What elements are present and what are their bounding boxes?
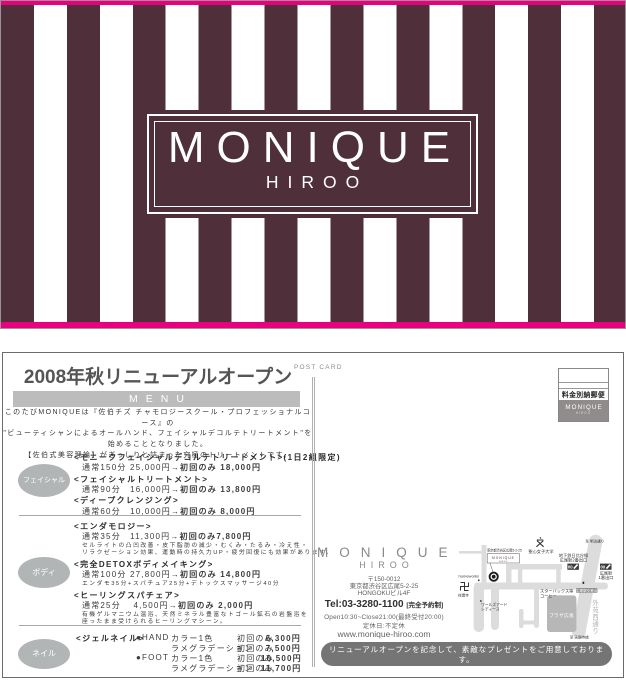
svg-text:至 天現寺橋: 至 天現寺橋 bbox=[570, 635, 589, 640]
svg-text:り: り bbox=[592, 627, 598, 635]
svg-text:00: 00 bbox=[600, 565, 605, 570]
svg-text:HIROO: HIROO bbox=[499, 561, 508, 563]
svg-text:レディース: レディース bbox=[481, 607, 500, 612]
svg-text:ワールズアード: ワールズアード bbox=[481, 602, 508, 607]
svg-text:祥雲寺: 祥雲寺 bbox=[458, 593, 469, 598]
svg-text:東京都渋谷区広尾5-2-25: 東京都渋谷区広尾5-2-25 bbox=[487, 548, 522, 553]
svg-text:1番出口: 1番出口 bbox=[599, 574, 614, 581]
svg-text:homeworks: homeworks bbox=[459, 574, 479, 579]
svg-text:広尾駅2番出口: 広尾駅2番出口 bbox=[560, 557, 587, 564]
svg-text:西: 西 bbox=[592, 613, 598, 621]
svg-text:通: 通 bbox=[592, 619, 599, 628]
svg-text:外: 外 bbox=[592, 598, 599, 607]
svg-text:聖心女子大学: 聖心女子大学 bbox=[528, 548, 553, 555]
svg-text:コーヒー: コーヒー bbox=[540, 593, 557, 598]
svg-text:至 明治通り: 至 明治通り bbox=[585, 538, 604, 543]
svg-text:苑: 苑 bbox=[592, 605, 599, 614]
svg-text:MONIQUE: MONIQUE bbox=[492, 556, 515, 560]
svg-text:00: 00 bbox=[568, 565, 573, 570]
svg-text:プラザ広尾: プラザ広尾 bbox=[549, 612, 574, 619]
svg-text:広尾駅交差点: 広尾駅交差点 bbox=[576, 588, 598, 593]
